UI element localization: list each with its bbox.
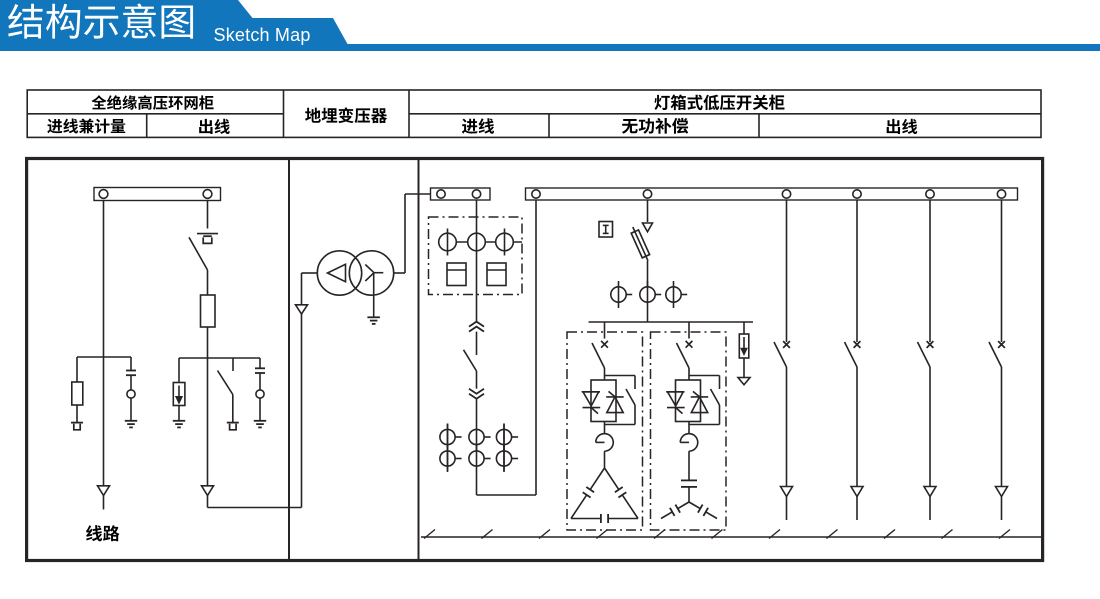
svg-text:Sketch Map: Sketch Map xyxy=(214,25,311,45)
